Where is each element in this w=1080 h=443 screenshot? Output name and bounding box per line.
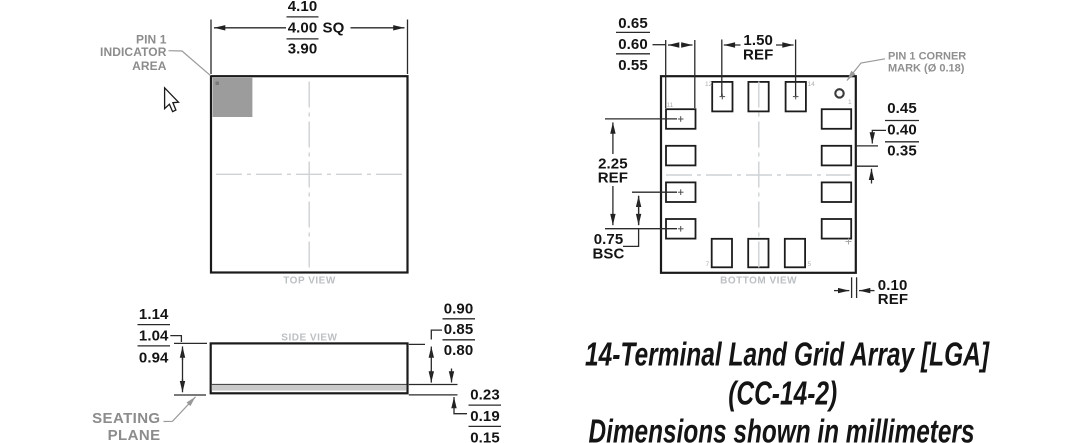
svg-text:Dimensions shown in millimeter: Dimensions shown in millimeters [589,413,975,443]
svg-text:4.00: 4.00 [288,20,318,37]
svg-text:REF: REF [743,46,773,63]
svg-text:0.60: 0.60 [618,36,648,53]
svg-text:1: 1 [848,99,852,106]
svg-text:0.80: 0.80 [444,342,474,359]
svg-text:PIN 1 CORNER: PIN 1 CORNER [888,50,966,62]
svg-text:TOP VIEW: TOP VIEW [283,276,336,287]
svg-text:REF: REF [598,169,628,186]
svg-text:SQ: SQ [323,20,345,37]
svg-text:0.90: 0.90 [444,300,474,317]
svg-text:0.85: 0.85 [444,321,474,338]
svg-text:0.94: 0.94 [139,350,169,367]
svg-text:12: 12 [705,81,713,88]
svg-text:BSC: BSC [593,246,625,263]
svg-text:0.23: 0.23 [470,387,500,404]
svg-text:0.35: 0.35 [887,143,917,160]
svg-text:4.10: 4.10 [288,0,318,15]
svg-text:14-Terminal Land Grid Array [L: 14-Terminal Land Grid Array [LGA] [585,335,990,372]
svg-text:0.45: 0.45 [887,100,917,117]
svg-text:0.19: 0.19 [470,408,500,425]
svg-text:7: 7 [706,261,710,268]
svg-text:BOTTOM VIEW: BOTTOM VIEW [720,276,797,287]
svg-text:0.40: 0.40 [887,121,917,138]
svg-text:0.65: 0.65 [618,15,648,32]
svg-text:14: 14 [808,81,816,88]
svg-text:5: 5 [808,261,812,268]
svg-text:REF: REF [878,291,908,308]
svg-text:11: 11 [667,102,674,109]
svg-text:0.15: 0.15 [470,429,500,443]
svg-text:1.04: 1.04 [139,327,169,344]
svg-text:1.14: 1.14 [139,306,169,323]
svg-text:3.90: 3.90 [288,41,318,58]
svg-text:SEATING: SEATING [92,410,160,427]
svg-text:(CC-14-2): (CC-14-2) [728,375,837,412]
svg-text:AREA: AREA [132,59,167,73]
svg-text:0.55: 0.55 [618,57,648,74]
svg-text:PLANE: PLANE [108,427,161,443]
svg-text:INDICATOR: INDICATOR [100,45,167,59]
svg-text:SIDE VIEW: SIDE VIEW [281,332,337,343]
svg-text:MARK (Ø 0.18): MARK (Ø 0.18) [888,63,965,75]
